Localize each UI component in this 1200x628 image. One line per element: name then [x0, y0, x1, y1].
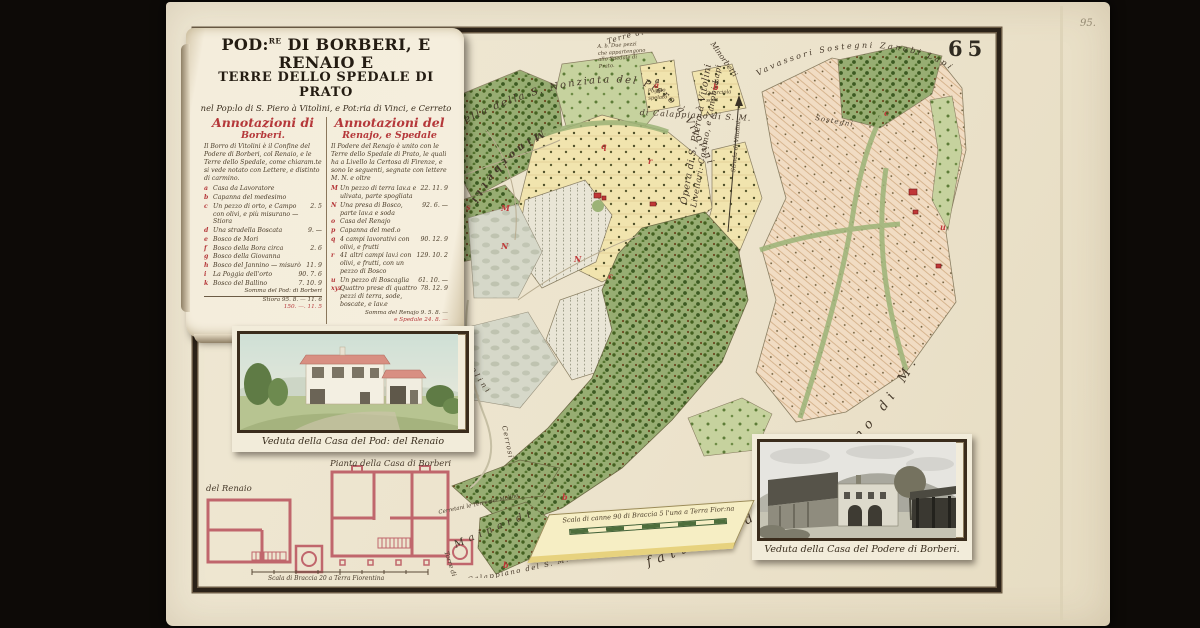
borberi-view-inset: Veduta della Casa del Podere di Borberi. — [752, 434, 972, 560]
borberi-view-frame — [757, 439, 967, 541]
borberi-view-caption: Veduta della Casa del Podere di Borberi. — [757, 544, 967, 555]
annotation-item: eBosco de Mori — [204, 236, 322, 244]
annotation-item: r41 altri campi lav.i con olivi, e frutt… — [331, 252, 448, 275]
map-letter: u — [940, 222, 946, 232]
map-title-line2: TERRE DELLO SPEDALE DI PRATO — [200, 71, 452, 101]
renaio-view-caption: Veduta della Casa del Pod: del Renaio — [237, 436, 469, 447]
renaio-total-line: Somma del Renajo 9. 5. 8. — — [331, 310, 448, 317]
annotation-item: aCasa da Lavoratore — [204, 185, 322, 193]
annotation-item: q4 campi lavorativi con olivi, e frutti9… — [331, 236, 448, 252]
borberi-total-line: Stiora 95. 8. — 11. 6 — [204, 296, 322, 304]
renaio-total-line: e Spedale 24. 8. — — [331, 317, 448, 324]
map-letter: M — [501, 203, 510, 213]
annotation-item: NUna presa di Bosco, parte lav.a e soda9… — [331, 202, 448, 218]
annotation-item: fBosco della Bora circa2. 6 — [204, 245, 322, 253]
annotation-item: gBosco della Giovanna — [204, 253, 322, 261]
spedale-note: A. b. Due pezzi che appartengono allo Sp… — [597, 40, 657, 70]
renaio-column-heading: Annotazioni delRenajo, e Spedale — [331, 117, 448, 140]
annotation-item: pCapanna del med.o — [331, 227, 448, 235]
annotation-item: MUn pezzo di terra lav.a e ulivata, part… — [331, 185, 448, 201]
annotation-item: kBosco del Ballino7. 10. 9 — [204, 280, 322, 288]
annotation-item: xyzQuattro prese di quattro pezzi di ter… — [331, 285, 448, 308]
map-letter: c — [884, 108, 889, 118]
annotation-item: bCapanna del medesimo — [204, 194, 322, 202]
map-letter: b — [503, 560, 509, 570]
map-letter: b — [562, 492, 568, 502]
renaio-house-painting — [240, 334, 458, 430]
borberi-house-painting — [760, 442, 956, 538]
borberi-total-line: 150. —. 11. 5 — [204, 304, 322, 311]
annotation-item: cUn pezzo di orto, e Campo con olivi, e … — [204, 203, 322, 226]
floor-plans — [208, 466, 472, 572]
map-letter: s — [466, 202, 471, 212]
plate-number: 65 — [948, 36, 987, 61]
borberi-total-line: Somma del Pod: di Borberi — [204, 288, 322, 295]
antique-cadastral-map-scan: 95. — [0, 0, 1200, 628]
renaio-intro-text: Il Podere del Renajo è unito con le Terr… — [331, 143, 448, 183]
map-title-line1: POD:RE DI BORBERI, E RENAIO E — [200, 36, 452, 71]
map-letter: a — [654, 80, 659, 90]
plan-scale-caption: Scala di Braccia 20 a Terra Fiorentina — [268, 575, 384, 582]
map-letter: b — [713, 82, 719, 92]
borberi-column-heading: Annotazioni diBorberi. — [204, 117, 322, 140]
renaio-view-inset: Veduta della Casa del Pod: del Renaio — [232, 326, 474, 452]
map-letter: c — [608, 271, 613, 281]
annotation-item: hBosco del Jannino — misurò11. 9 — [204, 262, 322, 270]
map-letter: q — [601, 141, 607, 151]
map-letter: N — [574, 254, 581, 264]
borberi-intro-text: Il Borro di Vitolini è il Confine del Po… — [204, 143, 322, 183]
annotation-item: oCasa del Renajo — [331, 218, 448, 226]
annotation-item: uUn pezzo di Boscaglia61. 10. — — [331, 277, 448, 285]
plan-left-label: del Renaio — [206, 484, 252, 494]
map-title-line3: nel Pop:lo di S. Piero à Vitolini, e Pot… — [200, 103, 452, 113]
annotations-renaio-column: Annotazioni delRenajo, e Spedale Il Pode… — [326, 117, 452, 324]
renaio-view-frame — [237, 331, 469, 433]
annotations-borberi-column: Annotazioni diBorberi. Il Borro di Vitol… — [200, 117, 326, 324]
annotation-item: iLa Poggia dell'orto90. 7. 6 — [204, 271, 322, 279]
map-letter: N — [501, 241, 508, 251]
plan-right-label: Pianta della Casa di Borberi — [330, 459, 451, 469]
title-cartouche-scroll: POD:RE DI BORBERI, E RENAIO E TERRE DELL… — [186, 28, 464, 338]
annotation-item: dUna stradella Boscata9. — — [204, 227, 322, 235]
map-letter: r — [648, 156, 652, 166]
